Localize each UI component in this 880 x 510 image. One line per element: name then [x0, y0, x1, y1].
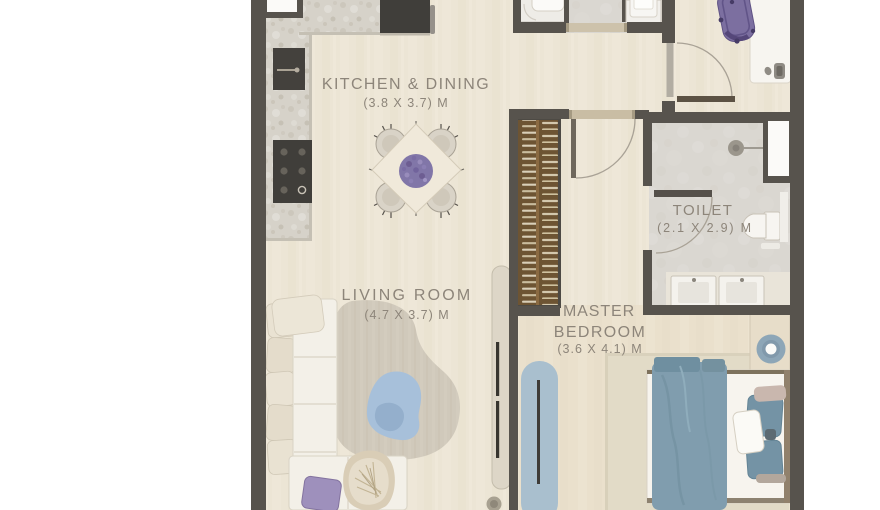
svg-text:BEDROOM: BEDROOM	[554, 324, 646, 341]
svg-text:KITCHEN & DINING: KITCHEN & DINING	[322, 76, 490, 93]
svg-text:(3.8 X 3.7) M: (3.8 X 3.7) M	[363, 96, 448, 110]
svg-text:LIVING ROOM: LIVING ROOM	[342, 287, 473, 304]
svg-text:(3.6 X 4.1) M: (3.6 X 4.1) M	[557, 342, 642, 356]
svg-text:MASTER: MASTER	[563, 303, 635, 320]
svg-text:(2.1 X 2.9) M: (2.1 X 2.9) M	[657, 221, 753, 235]
svg-text:(4.7 X 3.7) M: (4.7 X 3.7) M	[364, 308, 449, 322]
svg-text:TOILET: TOILET	[673, 202, 734, 219]
